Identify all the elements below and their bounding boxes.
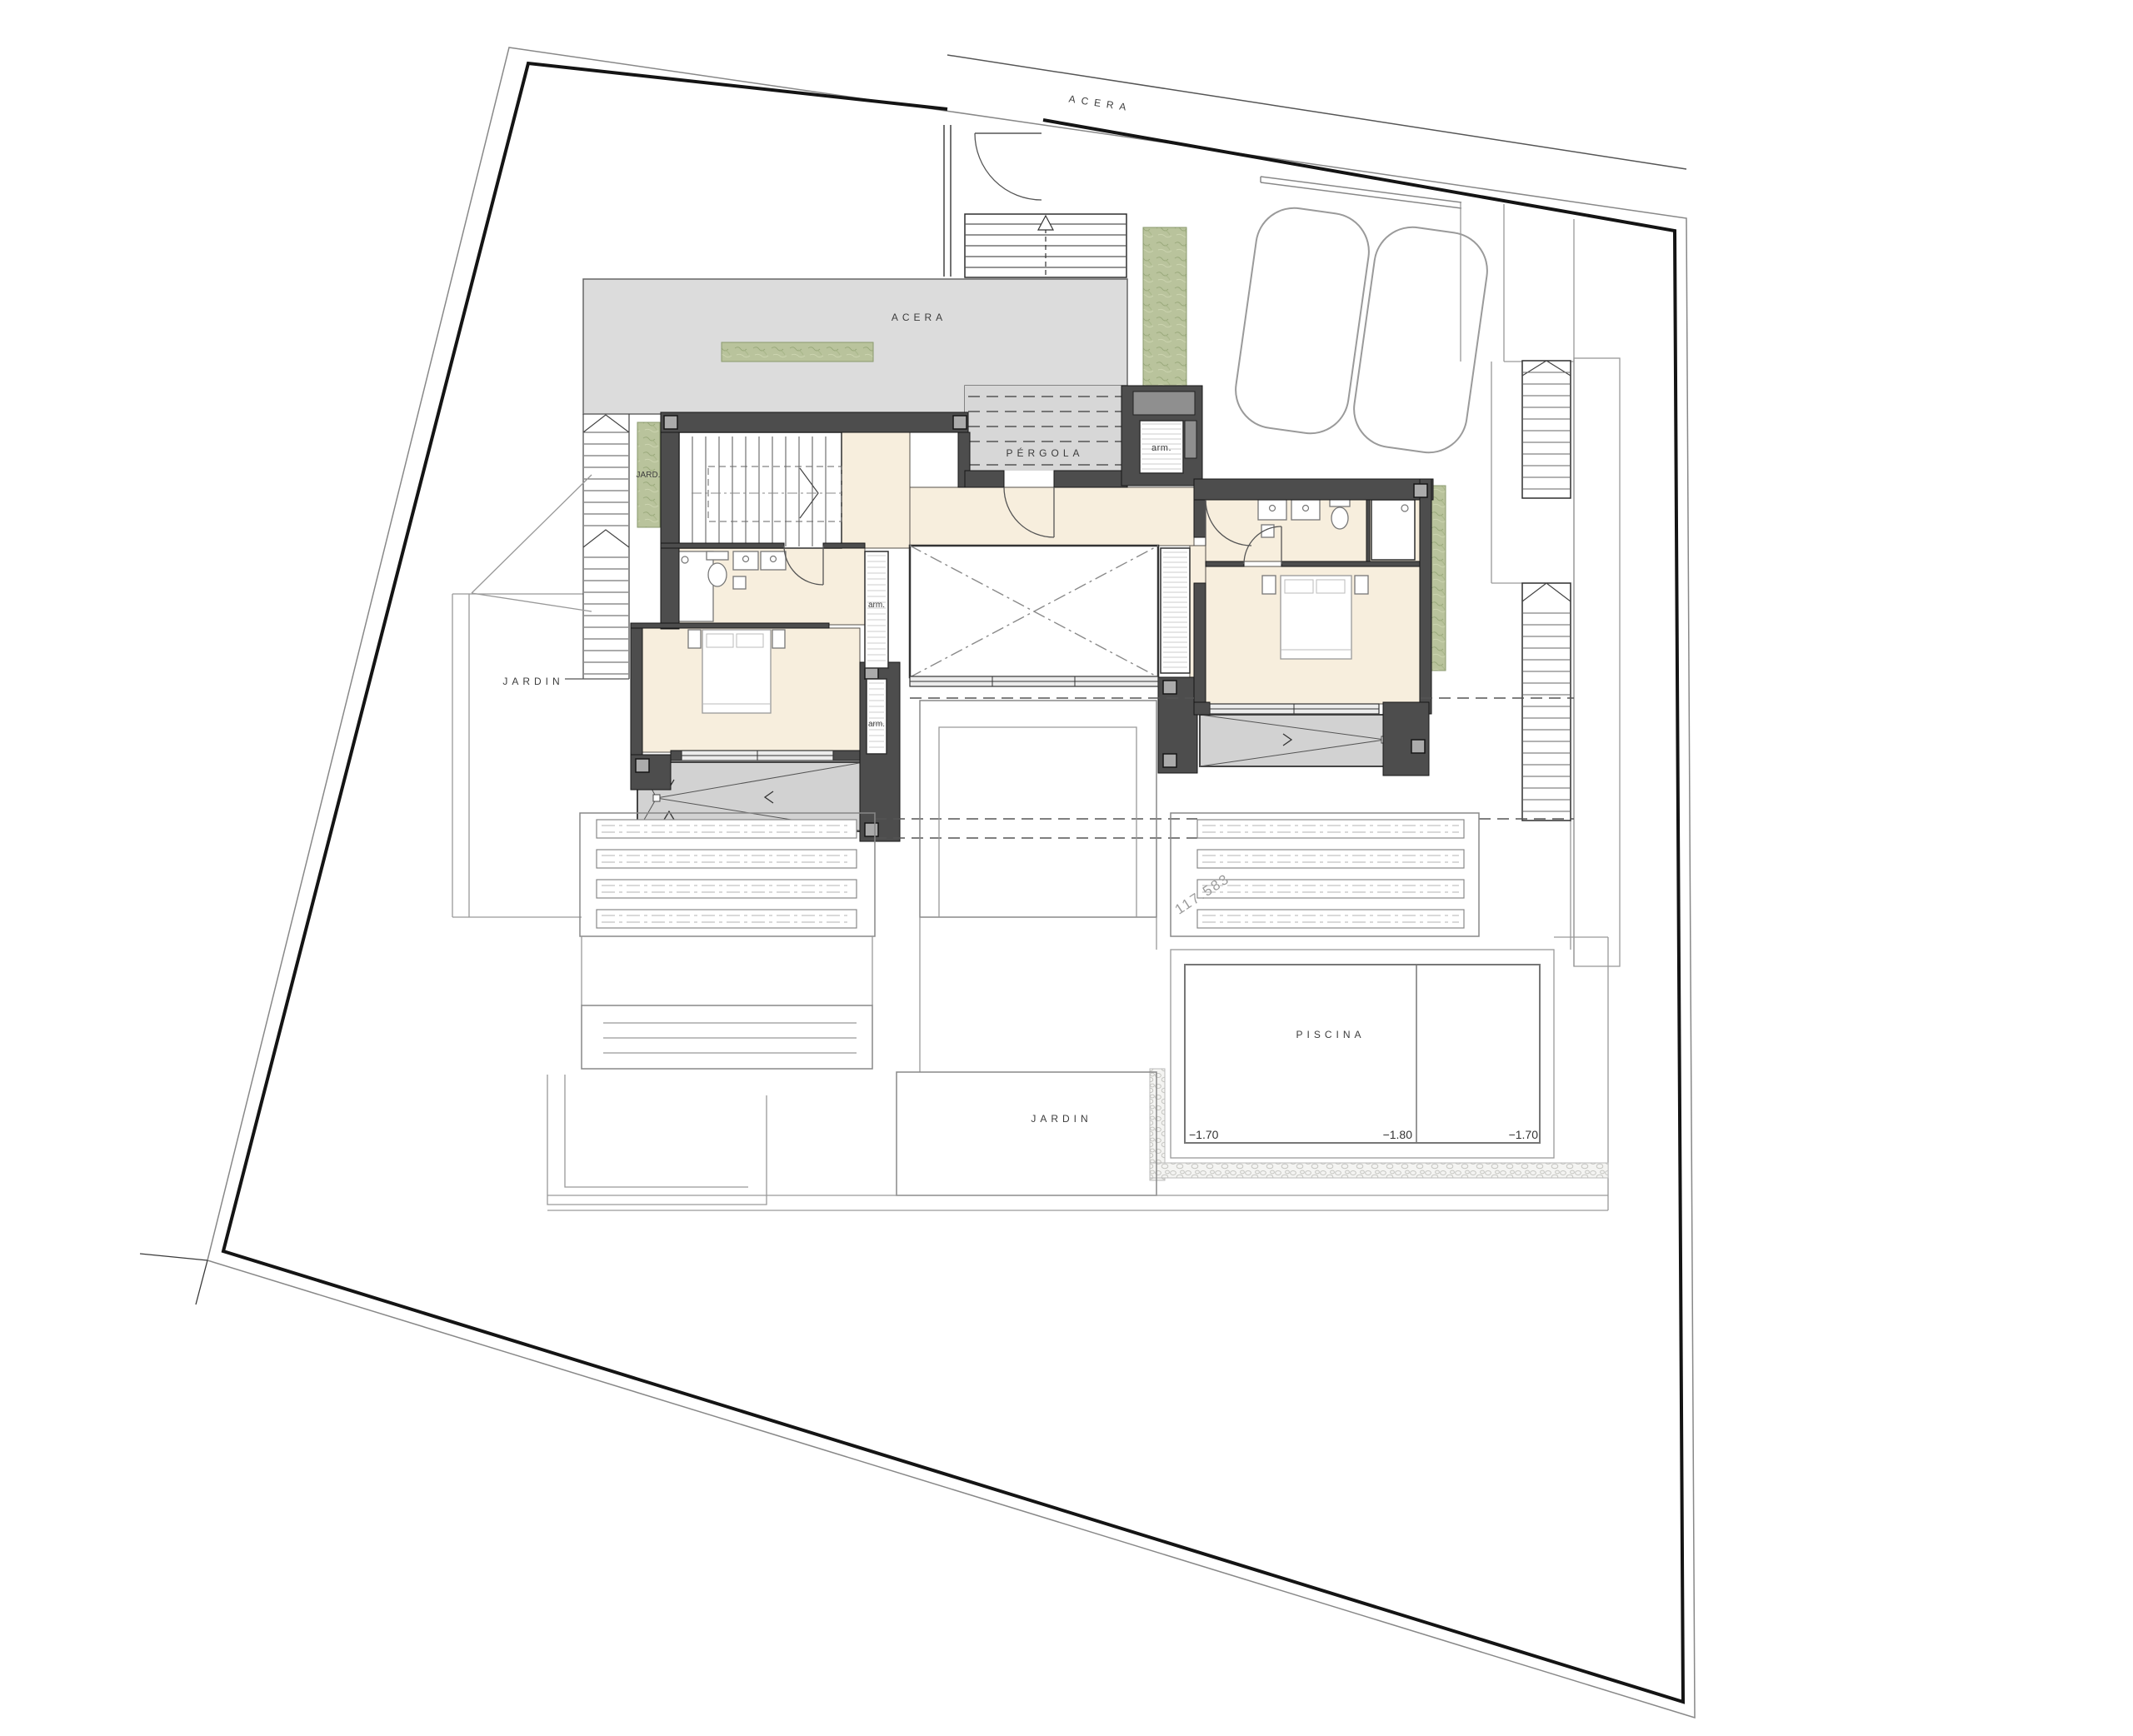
- closet-hall-label: arm.: [868, 601, 885, 610]
- exterior-stair-east: [1522, 583, 1571, 821]
- closet-entry-label: arm.: [1151, 443, 1171, 453]
- closet-hall: [865, 551, 888, 668]
- nightstand: [772, 630, 785, 648]
- exterior-stair-northeast: [1522, 361, 1571, 498]
- nightstand: [1262, 576, 1276, 594]
- sink: [1291, 500, 1320, 520]
- landing-floor: [842, 432, 910, 548]
- toilet-tank: [707, 551, 728, 560]
- nightstand: [688, 630, 701, 648]
- sink: [733, 551, 758, 570]
- pool-label: PISCINA: [1296, 1029, 1365, 1040]
- entry-stairs: [965, 214, 1126, 277]
- sink: [761, 551, 786, 570]
- entry-closet-liner: [1133, 392, 1195, 415]
- closet-bedroom: [867, 679, 887, 754]
- pool-basin: [1185, 965, 1540, 1143]
- interior-staircase: [679, 432, 842, 548]
- garden-south-label: JARDIN: [1031, 1113, 1091, 1125]
- planter-entry-court: [1143, 227, 1186, 386]
- garden-west-label: JARDIN: [502, 676, 563, 687]
- terrace-acera-label: ACERA: [892, 312, 947, 323]
- pool-level-left: −1.70: [1189, 1128, 1219, 1141]
- sink: [1258, 500, 1286, 520]
- closet-bedroom-label: arm.: [868, 720, 885, 729]
- pool-level-right: −1.70: [1509, 1128, 1539, 1141]
- bedroom-left-furniture: [688, 630, 785, 713]
- pool-level-middle: −1.80: [1383, 1128, 1413, 1141]
- pebble-border-south: [1150, 1163, 1608, 1178]
- closet-void-side: [1161, 548, 1190, 673]
- floor-plan-page: ACERA: [0, 0, 2133, 1736]
- shelf: [733, 576, 746, 589]
- courtyard-void: [910, 546, 1158, 677]
- floor-plan-drawing: ACERA: [0, 0, 2133, 1736]
- toilet-bowl: [708, 563, 727, 586]
- jard-strip-label: JARD.: [637, 471, 661, 480]
- entry-closet-post: [1185, 421, 1196, 458]
- planter-east-strip: [1431, 486, 1446, 671]
- nightstand: [1355, 576, 1368, 594]
- toilet-bowl: [1331, 507, 1348, 529]
- planter-north-wall: [722, 342, 873, 362]
- pergola-label: PÉRGOLA: [1006, 446, 1083, 459]
